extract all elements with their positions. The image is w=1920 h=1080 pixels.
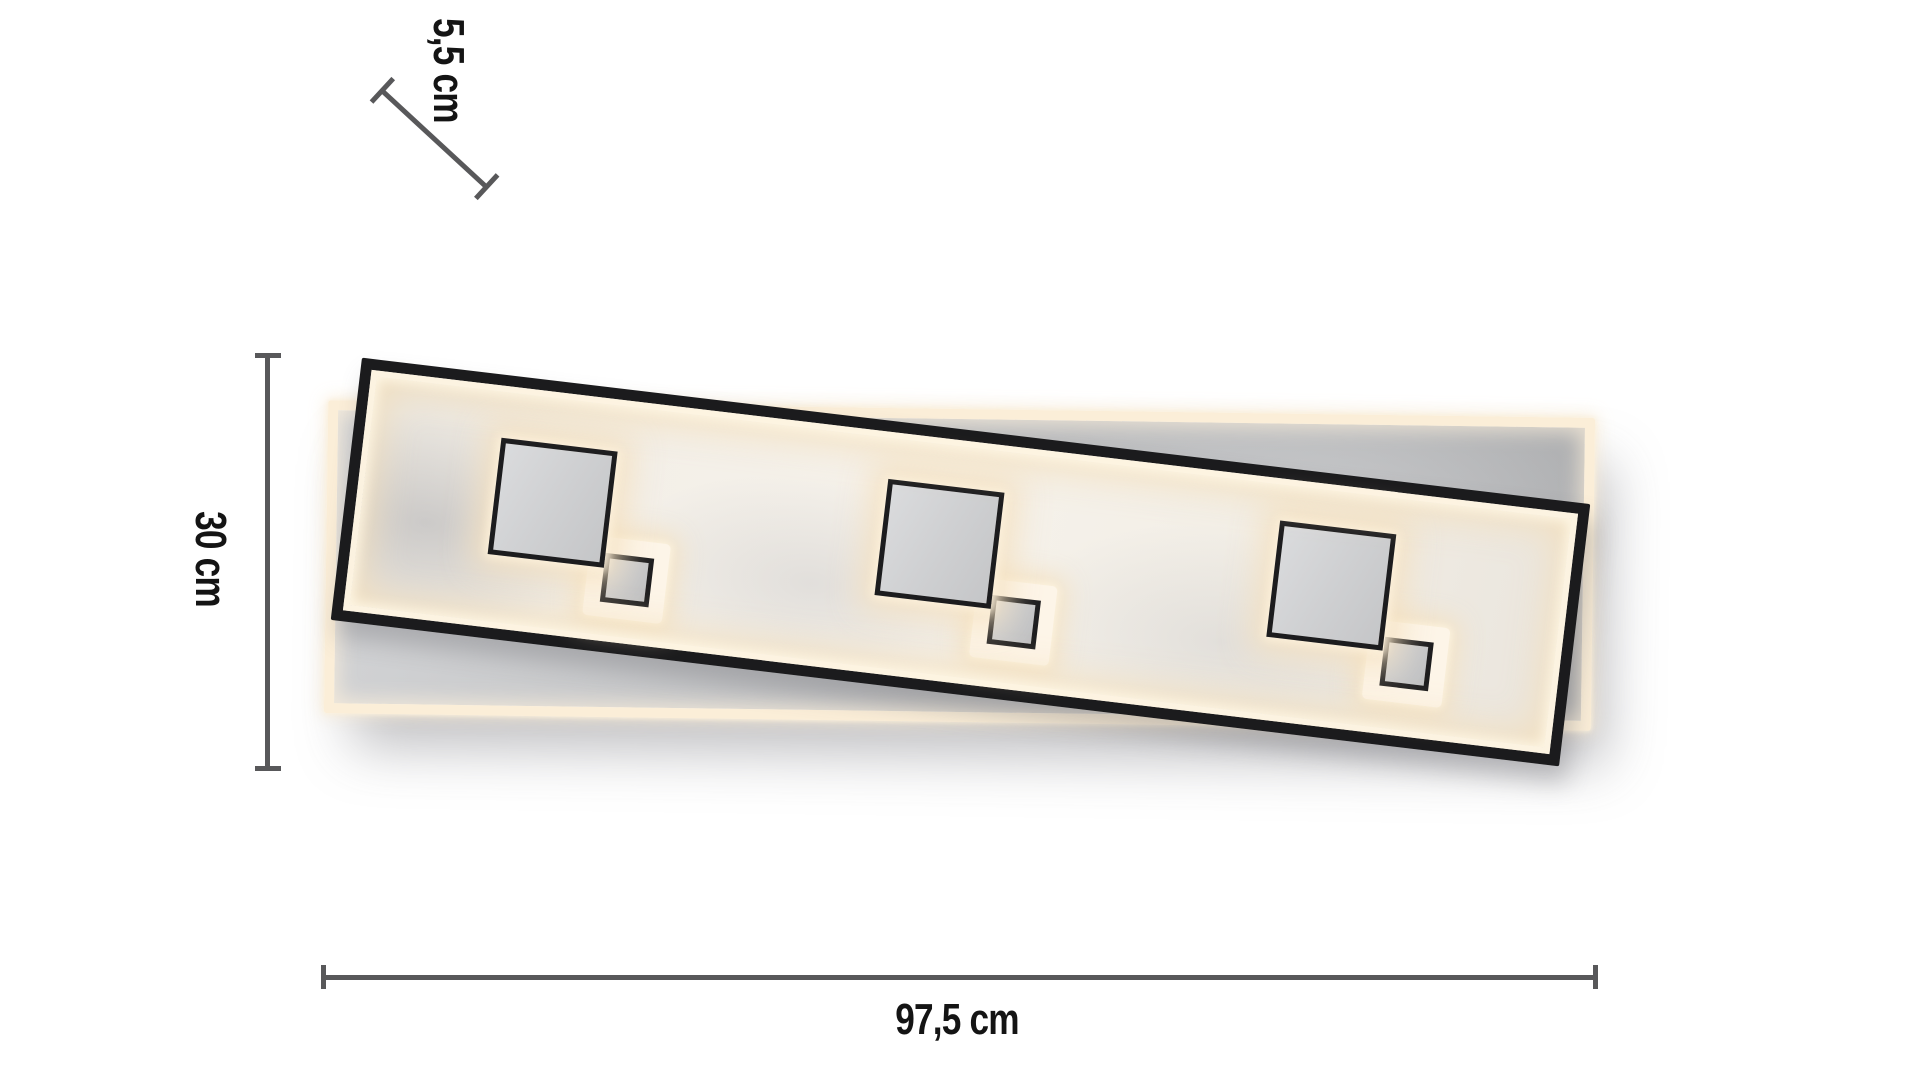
- depth-dimension-label: 5,5 cm: [426, 18, 470, 122]
- width-dimension-cap-left: [321, 965, 326, 989]
- small-led-square-3: [1379, 636, 1433, 690]
- small-led-square-1: [599, 552, 653, 606]
- large-led-square-2: [874, 479, 1004, 609]
- height-dimension-line: [265, 356, 270, 769]
- large-led-square-1: [488, 438, 618, 568]
- width-dimension-cap-right: [1593, 965, 1598, 989]
- product-dimension-diagram: 30 cm 97,5 cm 5,5 cm: [0, 0, 1920, 1080]
- width-dimension-label: 97,5 cm: [861, 995, 1053, 1045]
- height-dimension-label: 30 cm: [188, 508, 232, 610]
- height-dimension-cap-bottom: [255, 766, 281, 771]
- height-dimension-cap-top: [255, 353, 281, 358]
- large-led-square-3: [1266, 521, 1396, 651]
- small-led-square-2: [986, 594, 1040, 648]
- width-dimension-line: [323, 975, 1597, 980]
